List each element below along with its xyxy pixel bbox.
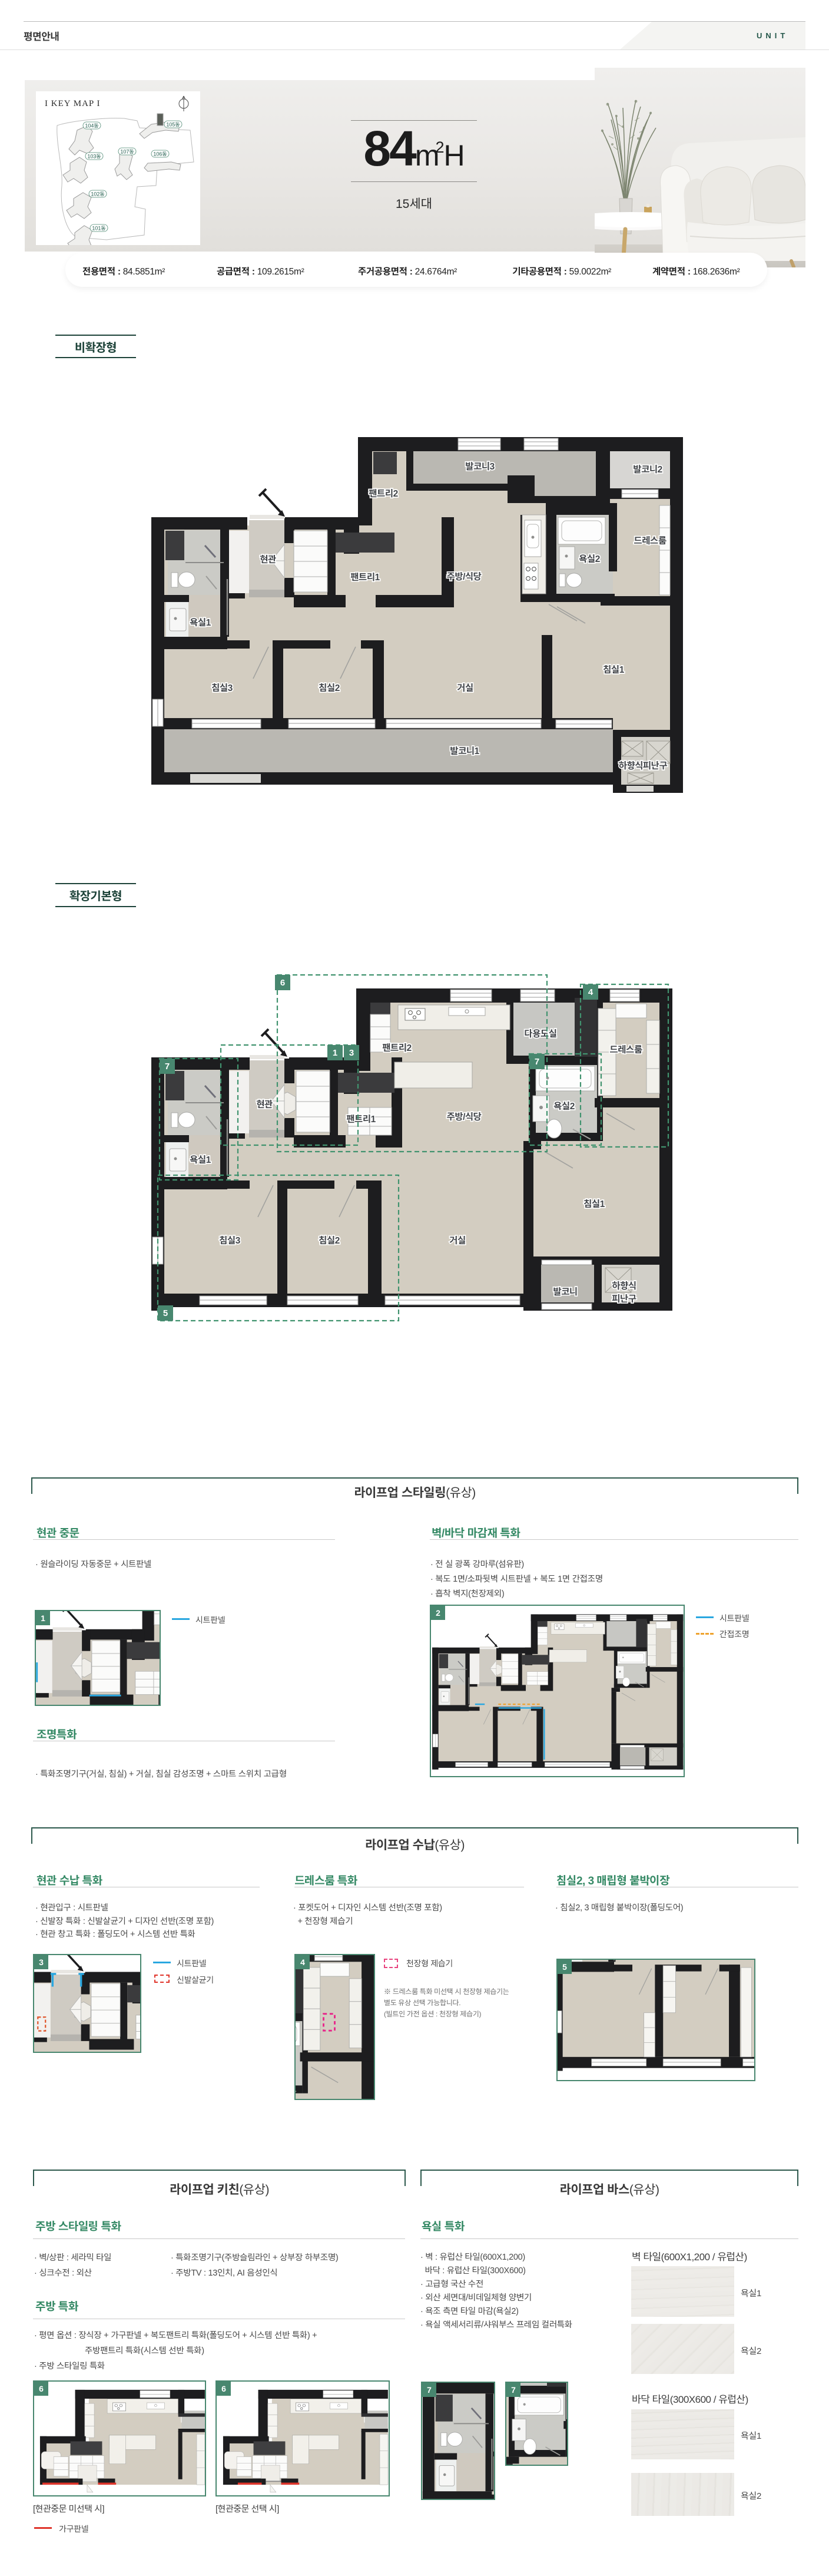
svg-text:욕실1: 욕실1 bbox=[190, 618, 211, 628]
svg-text:욕실2: 욕실2 bbox=[579, 554, 600, 564]
svg-text:침실1: 침실1 bbox=[603, 664, 625, 675]
svg-text:4: 4 bbox=[588, 987, 593, 997]
svg-text:1: 1 bbox=[333, 1048, 337, 1058]
svg-text:104동: 104동 bbox=[85, 123, 99, 129]
svg-text:침실3: 침실3 bbox=[211, 683, 233, 693]
svg-text:102동: 102동 bbox=[91, 191, 105, 197]
svg-text:거실: 거실 bbox=[457, 683, 473, 693]
svg-text:105동: 105동 bbox=[166, 122, 180, 128]
svg-text:7: 7 bbox=[165, 1062, 170, 1072]
svg-text:3: 3 bbox=[349, 1048, 354, 1058]
svg-text:현관: 현관 bbox=[260, 554, 277, 565]
svg-text:발코니1: 발코니1 bbox=[450, 746, 479, 756]
svg-text:106동: 106동 bbox=[153, 151, 167, 157]
svg-text:101동: 101동 bbox=[92, 226, 106, 232]
svg-text:7: 7 bbox=[535, 1057, 539, 1067]
svg-text:5: 5 bbox=[163, 1308, 168, 1318]
svg-text:발코니2: 발코니2 bbox=[633, 465, 662, 475]
svg-text:하향식피난구: 하향식피난구 bbox=[619, 760, 668, 771]
svg-text:107동: 107동 bbox=[120, 149, 134, 155]
svg-text:팬트리2: 팬트리2 bbox=[369, 489, 397, 499]
svg-text:침실2: 침실2 bbox=[319, 683, 340, 693]
svg-text:드레스룸: 드레스룸 bbox=[634, 536, 666, 546]
svg-text:발코니3: 발코니3 bbox=[465, 462, 495, 472]
svg-text:6: 6 bbox=[280, 978, 285, 988]
svg-text:팬트리1: 팬트리1 bbox=[350, 573, 380, 583]
svg-text:103동: 103동 bbox=[87, 154, 101, 160]
svg-text:주방/식당: 주방/식당 bbox=[447, 572, 482, 582]
